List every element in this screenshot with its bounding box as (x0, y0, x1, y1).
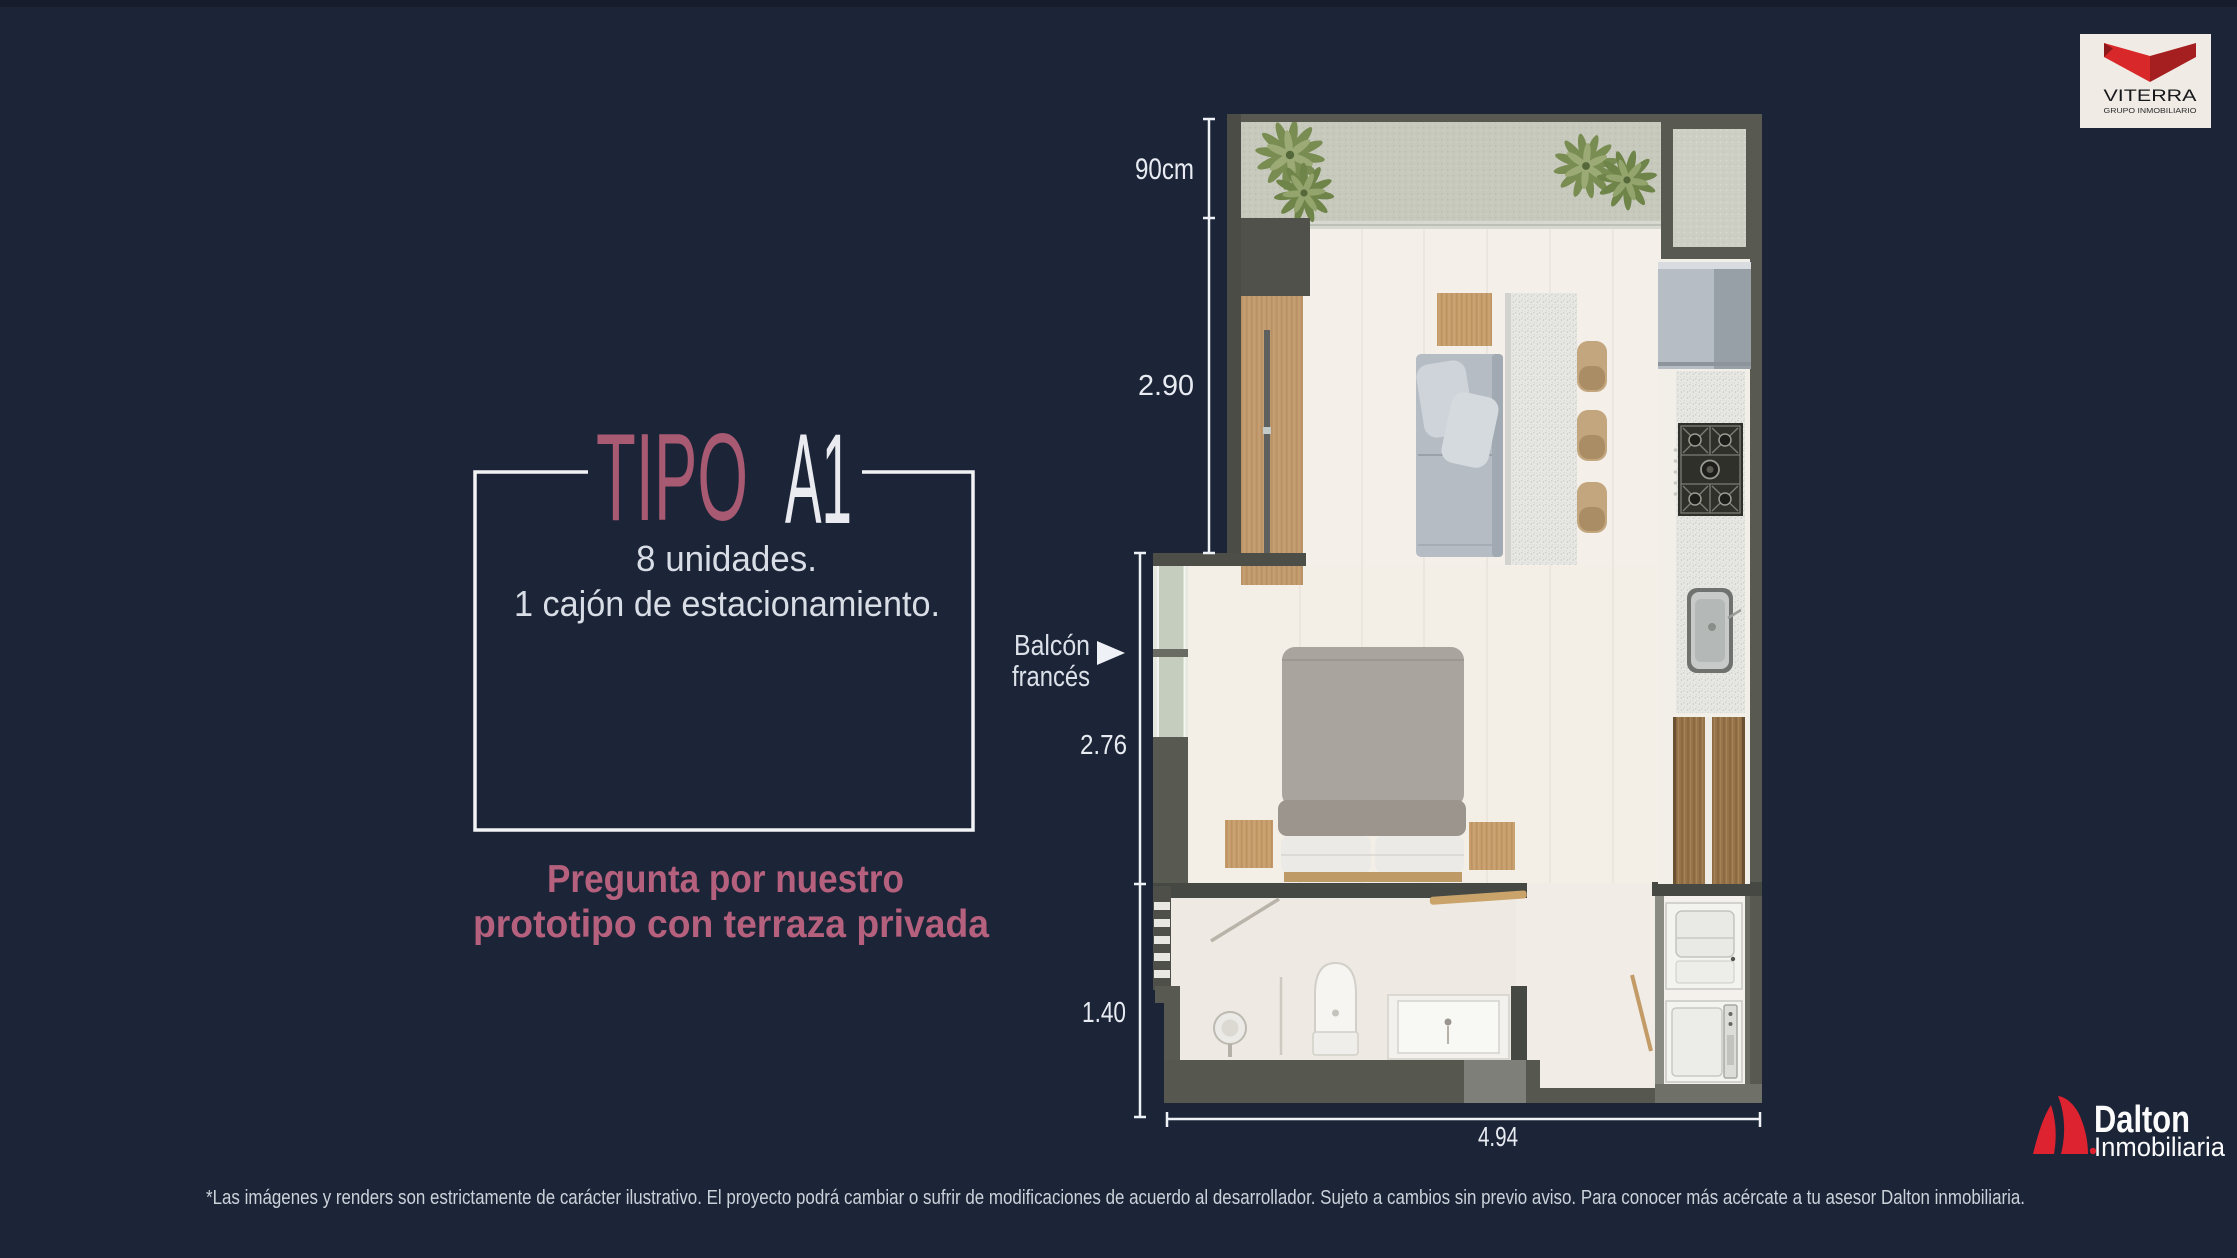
svg-text:Pregunta por nuestro: Pregunta por nuestro (547, 858, 904, 901)
svg-text:*Las imágenes y renders son es: *Las imágenes y renders son estrictament… (206, 1186, 2025, 1209)
svg-text:francés: francés (1012, 661, 1090, 693)
svg-text:A1: A1 (785, 408, 852, 551)
svg-text:1 cajón de estacionamiento.: 1 cajón de estacionamiento. (514, 583, 940, 624)
svg-text:4.94: 4.94 (1478, 1121, 1518, 1152)
svg-text:GRUPO INMOBILIARIO: GRUPO INMOBILIARIO (2104, 106, 2197, 115)
svg-text:Balcón: Balcón (1014, 630, 1090, 662)
svg-text:Inmobiliaria: Inmobiliaria (2094, 1132, 2226, 1162)
svg-text:2.76: 2.76 (1080, 729, 1127, 760)
svg-text:1.40: 1.40 (1082, 997, 1126, 1029)
svg-text:VITERRA: VITERRA (2104, 87, 2197, 105)
svg-text:TIPO: TIPO (596, 409, 748, 547)
svg-text:90cm: 90cm (1135, 153, 1194, 186)
svg-text:8 unidades.: 8 unidades. (636, 538, 817, 579)
svg-text:prototipo con terraza privada: prototipo con terraza privada (473, 903, 989, 946)
svg-text:2.90: 2.90 (1138, 370, 1194, 402)
